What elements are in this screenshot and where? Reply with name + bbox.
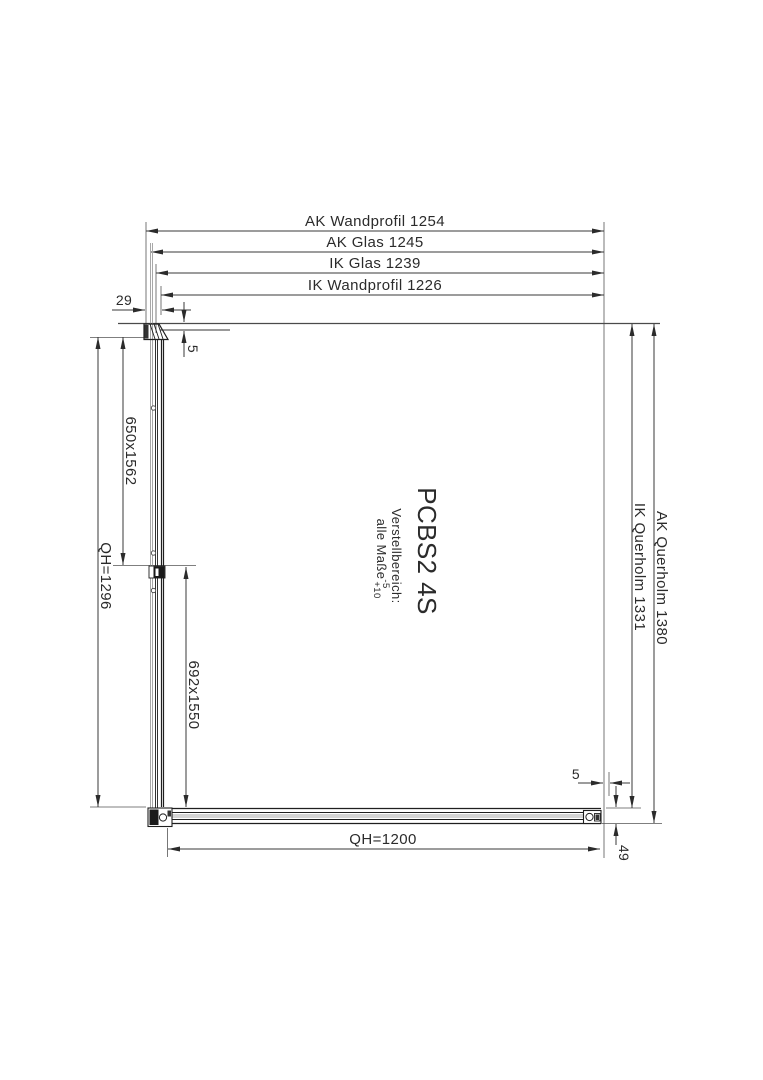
technical-drawing-page: AK Wandprofil 1254 AK Glas 1245 IK Glas … [0, 0, 763, 1080]
dim-label-ak-glas: AK Glas 1245 [326, 234, 423, 251]
dim-label-49: 49 [616, 845, 632, 861]
model-label: PCBS2 4S [412, 487, 442, 615]
dim-label-ak-wandprofil: AK Wandprofil 1254 [305, 213, 445, 230]
ceiling-line [118, 324, 660, 331]
note-tolerance-lower: +10 [371, 581, 382, 598]
dim-label-ik-glas: IK Glas 1239 [329, 255, 421, 272]
dim-label-qh-1200: QH=1200 [349, 831, 416, 848]
dim-label-ik-wandprofil: IK Wandprofil 1226 [308, 277, 442, 294]
center-annotation: PCBS2 4S Verstellbereich: alle Maße -5 +… [371, 487, 442, 615]
querholm-bar [148, 808, 601, 827]
dim-label-qh-1296: QH=1296 [97, 542, 114, 609]
note-line2: alle Maße [374, 519, 389, 580]
dim-label-692x1550: 692x1550 [185, 660, 202, 729]
dim-label-ik-querholm: IK Querholm 1331 [631, 503, 648, 631]
dim-label-ak-querholm: AK Querholm 1380 [653, 511, 670, 645]
technical-drawing: AK Wandprofil 1254 AK Glas 1245 IK Glas … [0, 0, 763, 1080]
dim-label-29: 29 [116, 292, 132, 308]
dim-label-5-top: 5 [185, 345, 201, 353]
note-line1: Verstellbereich: [389, 508, 404, 603]
dim-label-5-bottom: 5 [572, 766, 580, 782]
dim-label-650x1562: 650x1562 [122, 416, 139, 485]
